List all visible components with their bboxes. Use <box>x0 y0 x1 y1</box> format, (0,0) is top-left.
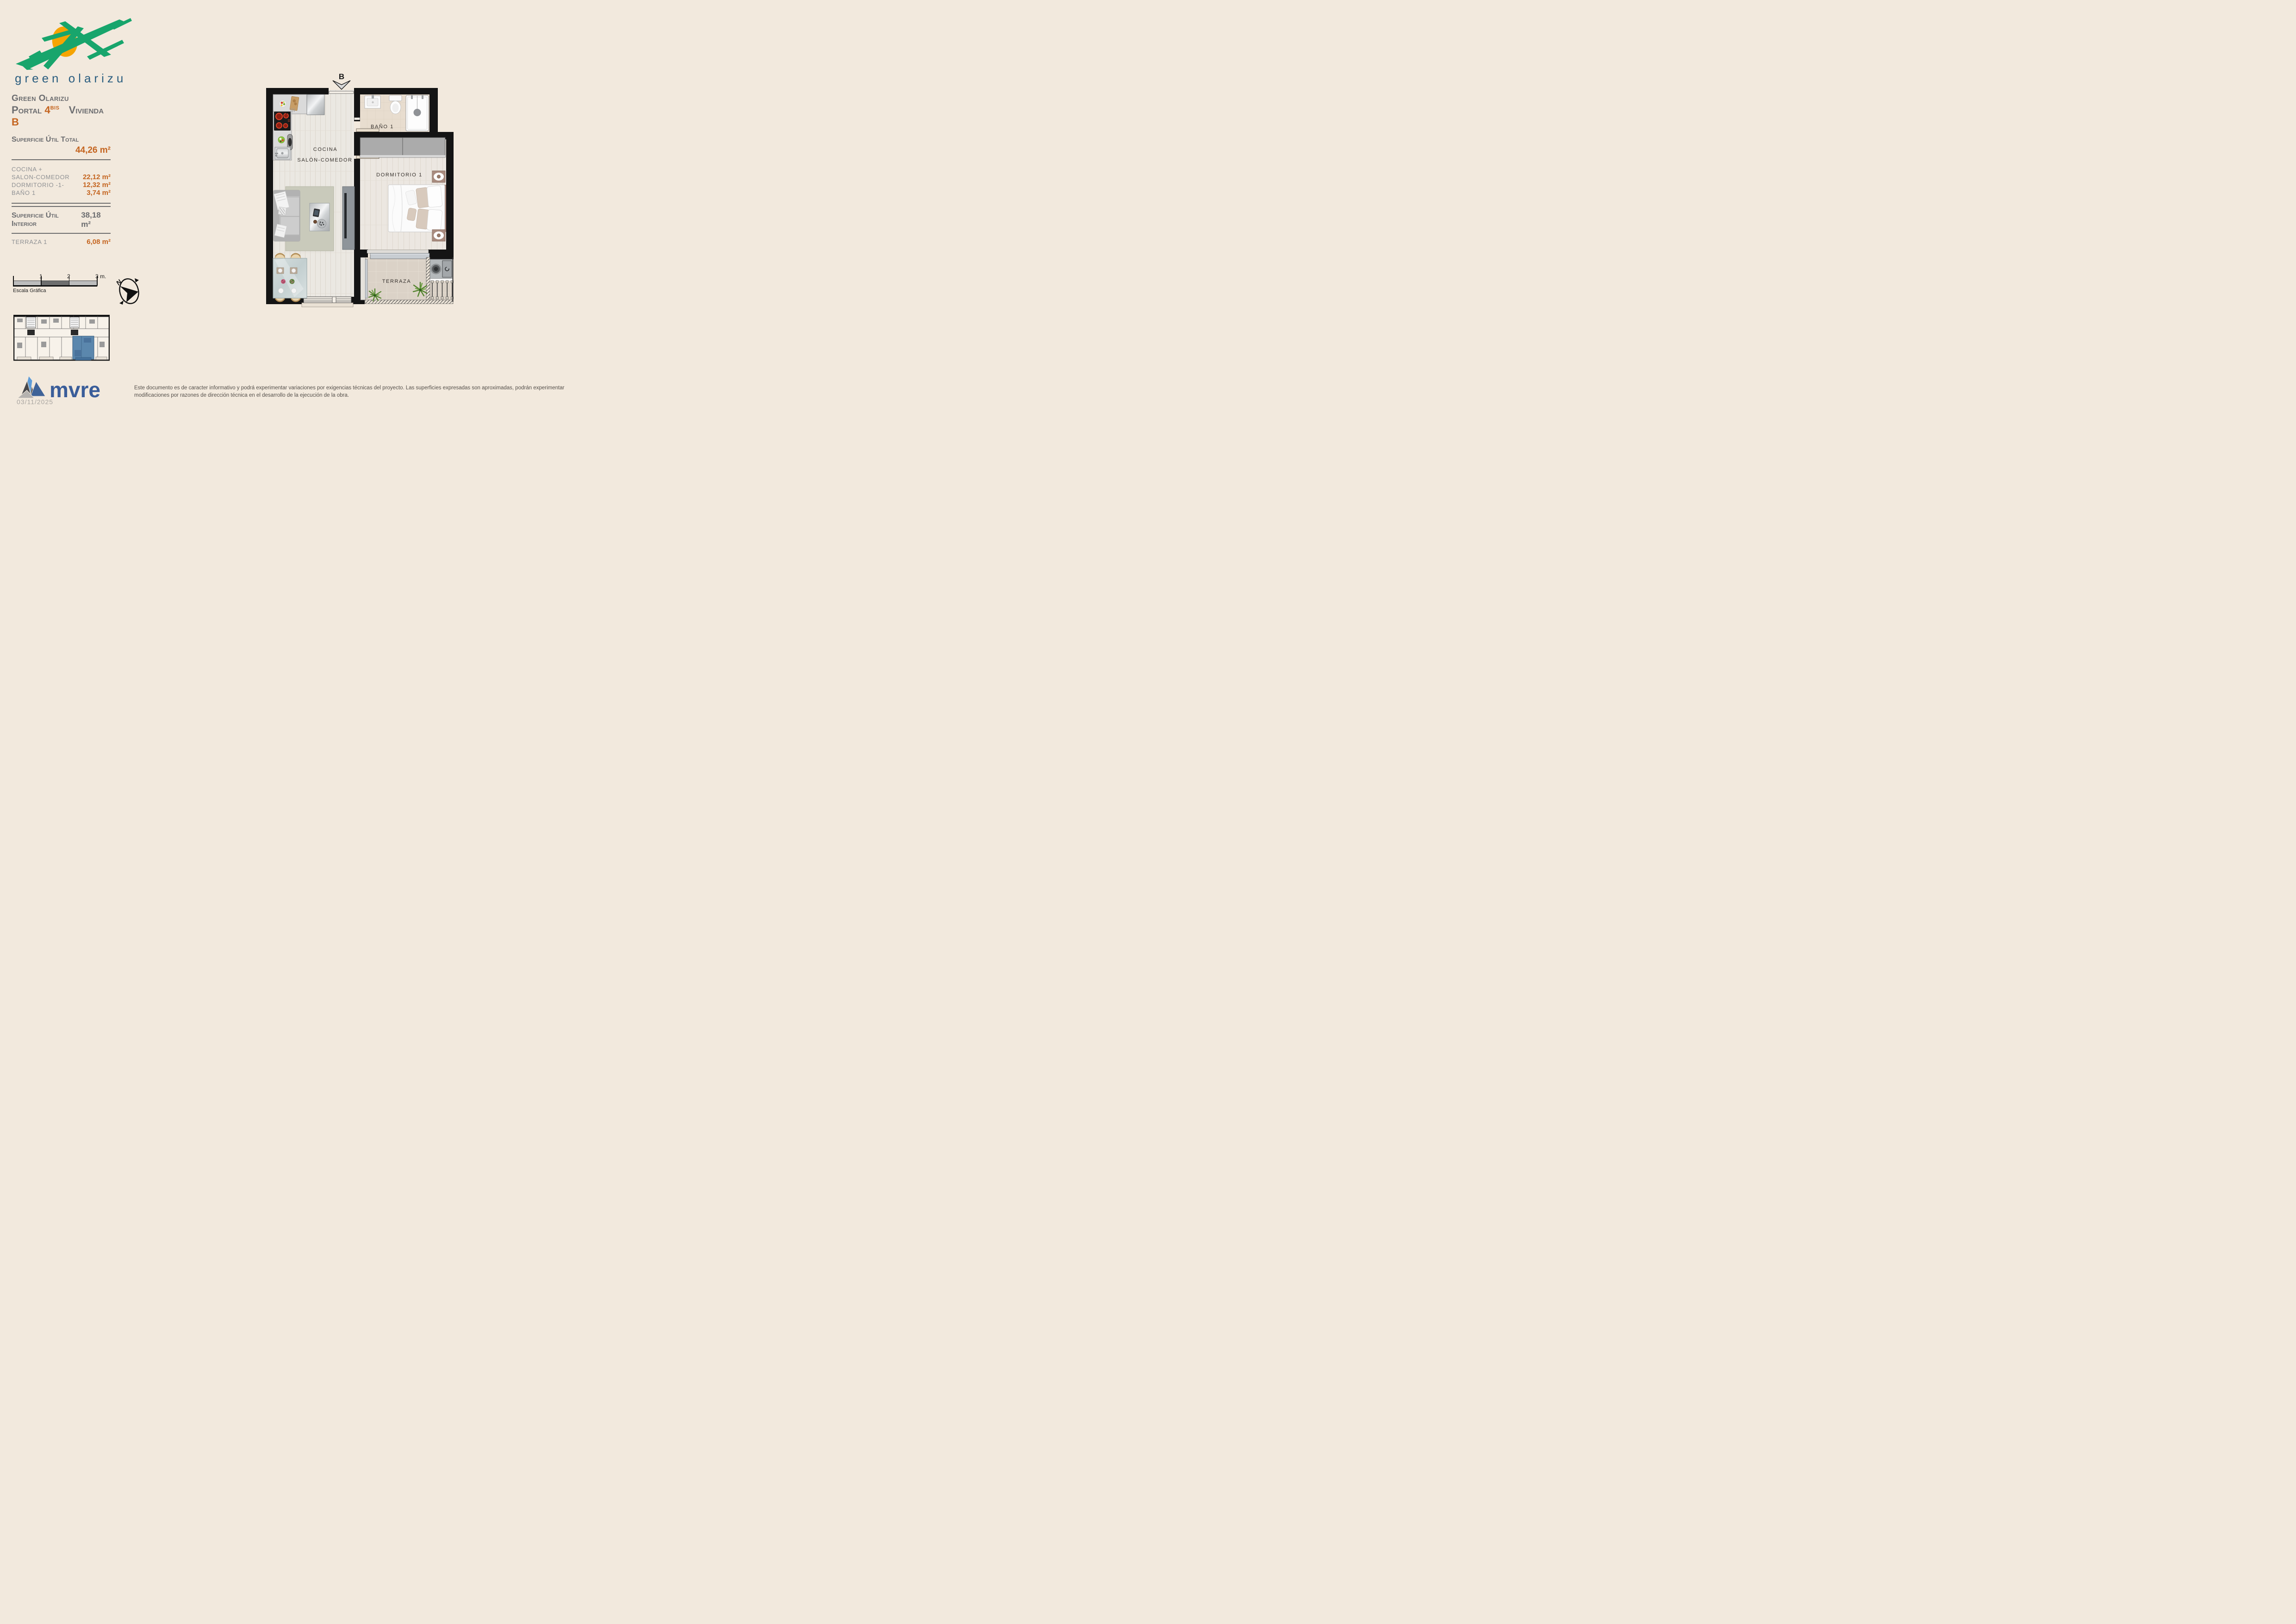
key-plan <box>13 315 110 361</box>
label-salon: SALÓN-COMEDOR <box>297 157 352 163</box>
terrace-side-window <box>361 257 367 300</box>
kitchen-sink <box>275 147 290 159</box>
dining-set <box>273 254 307 302</box>
label-dormitorio: DORMITORIO 1 <box>376 172 423 178</box>
portal-sup: BIS <box>50 106 60 111</box>
total-surface-label: Superficie Útil Total <box>12 136 111 144</box>
washing-machine <box>429 259 453 279</box>
list-item: BAÑO 1 3,74 m² <box>12 189 111 197</box>
mvre-mountain-icon <box>17 375 45 399</box>
project-title: Green Olarizu <box>12 94 111 104</box>
document-date: 03/11/2025 <box>17 398 53 406</box>
nightstand <box>432 230 445 241</box>
brand-wordmark: green olarizu <box>15 71 143 86</box>
divider <box>12 159 111 160</box>
portal-number: 4 <box>44 104 50 116</box>
fruit-bowl <box>280 100 286 107</box>
mvre-logo: mvre <box>17 375 100 399</box>
terrace-sliding-door <box>367 250 429 259</box>
total-surface-value: 44,26 m² <box>12 145 111 156</box>
hatched-partition <box>426 257 430 300</box>
toilet <box>389 95 402 114</box>
label-cocina: COCINA <box>313 147 337 152</box>
drying-railing <box>429 281 454 300</box>
kitchen-counter <box>273 94 307 114</box>
list-item: SALON-COMEDOR 22,12 m² <box>12 173 111 181</box>
plan-sheet-page: green olarizu Green Olarizu Portal 4BIS … <box>0 0 574 406</box>
brand-logo: green olarizu <box>13 14 143 86</box>
interior-surface-row: Superficie Útil Interior 38,18 m² <box>12 211 111 229</box>
shower <box>406 95 429 131</box>
keyplan-highlighted-unit <box>73 336 94 360</box>
compass-north-icon: N <box>114 274 144 307</box>
nightstand <box>432 171 445 182</box>
legal-disclaimer: Este documento es de caracter informativ… <box>134 384 570 400</box>
vivienda-letter: B <box>12 116 19 128</box>
entrance-marker: B <box>333 72 350 89</box>
portal-label: Portal <box>12 104 42 116</box>
brand-logo-mark-icon <box>13 14 137 70</box>
floor-plan: B <box>259 69 463 310</box>
bed <box>388 185 446 232</box>
list-item: DORMITORIO -1- 12,32 m² <box>12 181 111 189</box>
unit-subtitle: Portal 4BIS Vivienda B <box>12 104 111 128</box>
entrance-letter: B <box>339 72 344 81</box>
scale-bar-baseline <box>13 285 97 287</box>
bath-sink <box>365 95 380 108</box>
mvre-wordmark: mvre <box>50 381 100 399</box>
entrance-door <box>329 91 354 94</box>
divider-double <box>12 203 111 207</box>
living-window <box>302 297 353 307</box>
scale-bar-caption: Escala Gráfica <box>13 288 46 294</box>
entrance-arrow-icon <box>333 81 350 89</box>
vivienda-label: Vivienda <box>69 104 104 116</box>
coffee-table <box>310 203 330 231</box>
info-panel: Green Olarizu Portal 4BIS Vivienda B Sup… <box>12 94 111 246</box>
fridge <box>307 94 324 115</box>
label-terraza: TERRAZA <box>382 279 411 284</box>
sofa <box>274 190 300 241</box>
divider <box>12 233 111 234</box>
room-surface-list: COCINA + SALON-COMEDOR 22,12 m² DORMITOR… <box>12 165 111 197</box>
list-item: COCINA + <box>12 165 111 173</box>
tv-unit <box>342 187 355 250</box>
scale-bar: 1 2 3 m. Escala Gráfica <box>13 273 110 295</box>
cooktop <box>274 112 291 131</box>
wardrobe <box>360 137 445 157</box>
label-bano: BAÑO 1 <box>371 124 394 130</box>
terrace-surface-row: TERRAZA 1 6,08 m² <box>12 238 111 246</box>
